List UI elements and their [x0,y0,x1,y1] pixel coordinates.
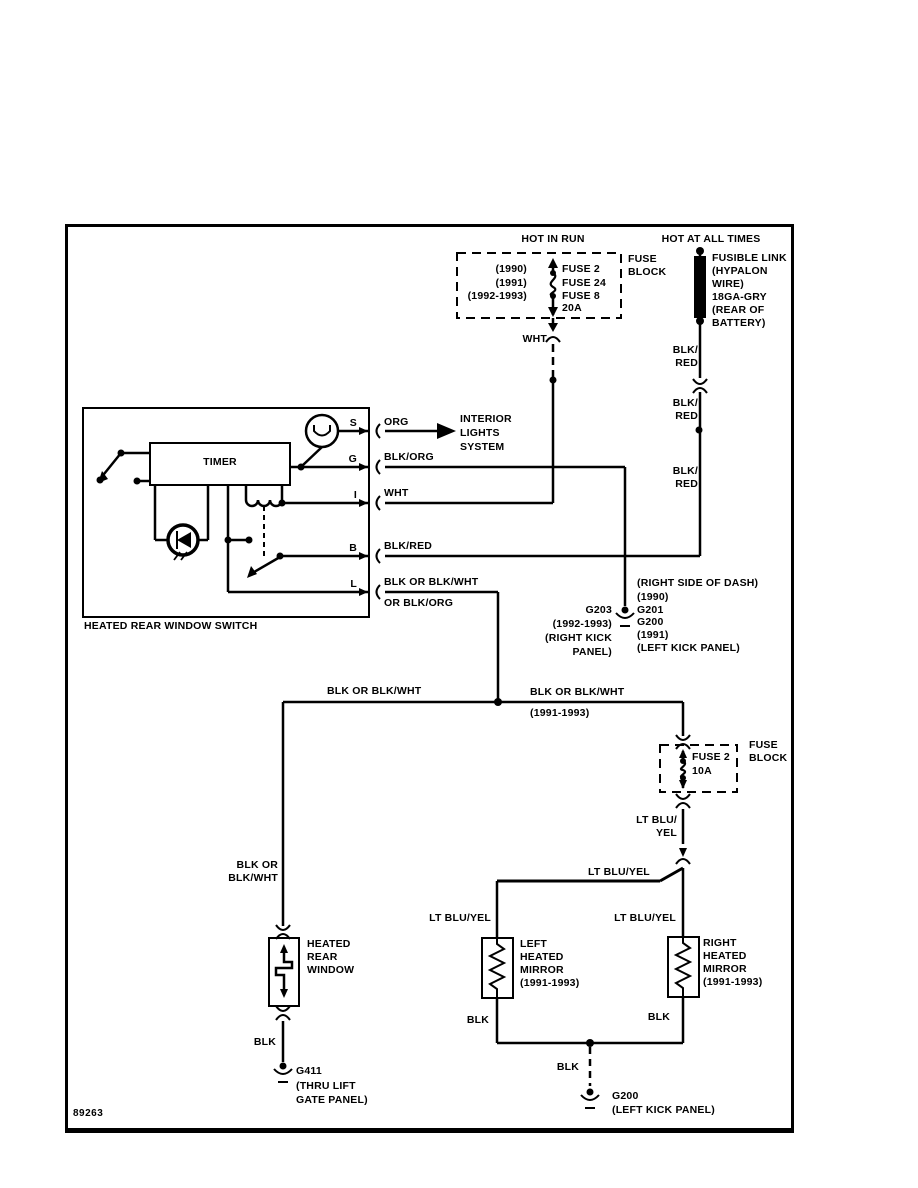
interior-lights-label-1: INTERIOR [460,414,512,425]
right-mirror-label-3: MIRROR [703,964,747,975]
fuse-24-label: FUSE 24 [562,278,606,289]
l-wire-label-1: BLK OR BLK/WHT [384,577,478,588]
fusible-link-icon [694,247,706,325]
g203-alt-label-2: (1990) [637,592,669,603]
interior-lights-label-3: SYSTEM [460,442,504,453]
terminal-l: L [341,579,357,590]
toggle-switch [100,453,150,479]
ground-icon-g203 [616,607,634,627]
g411-label-1: G411 [296,1066,322,1077]
switch-box [83,408,369,617]
diagram-number: 89263 [73,1108,103,1119]
lamp-icon [306,415,338,447]
top-fuse-block-label-1: FUSE [628,254,657,265]
blk-label-ground: BLK [539,1062,579,1073]
terminal-s: S [341,418,357,429]
left-mirror-label-2: HEATED [520,952,564,963]
blk-red-wire-label: BLK/RED [384,541,432,552]
fusible-link-label-3: WIRE) [712,279,744,290]
fuse-year-1992-1993: (1992-1993) [440,291,527,302]
fusible-link-label-5: (REAR OF [712,305,764,316]
g203-label-3: (RIGHT KICK [540,633,612,644]
hrw-label-2: REAR [307,952,338,963]
timer-label: TIMER [150,457,290,468]
interior-lights-label-2: LIGHTS [460,428,500,439]
fuse-year-1990: (1990) [440,264,527,275]
left-mirror-label-3: MIRROR [520,965,564,976]
g203-alt-label-5: (1991) [637,630,669,641]
lt-blu-yel-split-2: YEL [627,828,677,839]
left-mirror-label-4: (1991-1993) [520,978,579,989]
g411-label-3: GATE PANEL) [296,1095,368,1106]
hrw-label-1: HEATED [307,939,351,950]
right-mirror-label-2: HEATED [703,951,747,962]
switch-internals [100,447,322,592]
mid-fuse-block-label-1: FUSE [749,740,778,751]
terminal-g: G [341,454,357,465]
blk-red-3a: BLK/ [658,466,698,477]
fuse-rating-20a: 20A [562,303,582,314]
g203-label-1: G203 [540,605,612,616]
interior-lights-arrow [437,423,456,439]
g203-alt-label-3: G201 [637,605,664,616]
blk-label-hrw: BLK [236,1037,276,1048]
ground-icon-g200 [581,1089,599,1109]
g203-alt-label-6: (LEFT KICK PANEL) [637,643,740,654]
main-wire-left-label: BLK OR BLK/WHT [327,686,421,697]
relay-coil-symbol [246,500,282,506]
switch-title: HEATED REAR WINDOW SWITCH [84,621,257,632]
g200-label-2: (LEFT KICK PANEL) [612,1105,715,1116]
lt-blu-yel-split-1: LT BLU/ [627,815,677,826]
blk-red-2b: RED [658,411,698,422]
g203-alt-label-4: G200 [637,617,664,628]
right-mirror-label-1: RIGHT [703,938,737,949]
l-wire-label-2: OR BLK/ORG [384,598,453,609]
blk-red-1b: RED [658,358,698,369]
mid-fuse-rating: 10A [692,766,712,777]
mid-fuse-label: FUSE 2 [692,752,730,763]
blk-red-2a: BLK/ [658,398,698,409]
g203-label-4: PANEL) [540,647,612,658]
blk-org-wire-label: BLK/ORG [384,452,434,463]
wht-label-fuse: WHT [505,334,547,345]
blk-label-left-mirror: BLK [449,1015,489,1026]
fuse-year-1991: (1991) [440,278,527,289]
fusible-link-label-6: BATTERY) [712,318,766,329]
blk-label-right-mirror: BLK [630,1012,670,1023]
main-wire-right-label-1: BLK OR BLK/WHT [530,687,624,698]
g203-alt-label-1: (RIGHT SIDE OF DASH) [637,578,758,589]
left-drop-label-1: BLK OR [218,860,278,871]
mid-fuse-block-label-2: BLOCK [749,753,787,764]
wht-label-terminal-i: WHT [384,488,409,499]
fuse-2-label: FUSE 2 [562,264,600,275]
left-drop-label-2: BLK/WHT [218,873,278,884]
blk-red-3b: RED [658,479,698,490]
top-fuse-block-label-2: BLOCK [628,267,666,278]
fusible-link-label-2: (HYPALON [712,266,768,277]
right-mirror-label-4: (1991-1993) [703,977,762,988]
lt-blu-yel-left-mirror: LT BLU/YEL [411,913,491,924]
fusible-link-label-1: FUSIBLE LINK [712,253,787,264]
lt-blu-yel-right-mirror: LT BLU/YEL [596,913,676,924]
blk-red-1a: BLK/ [658,345,698,356]
terminal-b: B [341,543,357,554]
ground-symbols [274,607,634,1109]
terminal-i: I [341,490,357,501]
led-icon [168,525,198,560]
hrw-label-3: WINDOW [307,965,354,976]
diagram-lines [0,0,918,1188]
wiring-diagram: HOT IN RUN FUSE BLOCK (1990) (1991) (199… [0,0,918,1188]
junction-dots [97,270,703,1047]
left-mirror-label-1: LEFT [520,939,547,950]
hot-at-all-times-label: HOT AT ALL TIMES [645,234,777,245]
fuse-8-label: FUSE 8 [562,291,600,302]
org-wire-label: ORG [384,417,409,428]
main-wire-right-label-2: (1991-1993) [530,708,589,719]
lt-blu-yel-splice-label: LT BLU/YEL [588,867,650,878]
fusible-link-label-4: 18GA-GRY [712,292,767,303]
hot-in-run-label: HOT IN RUN [505,234,601,245]
ground-icon-g411 [274,1063,292,1083]
g411-label-2: (THRU LIFT [296,1081,356,1092]
g203-label-2: (1992-1993) [540,619,612,630]
g200-label-1: G200 [612,1091,639,1102]
heater-element-symbol [276,950,292,992]
